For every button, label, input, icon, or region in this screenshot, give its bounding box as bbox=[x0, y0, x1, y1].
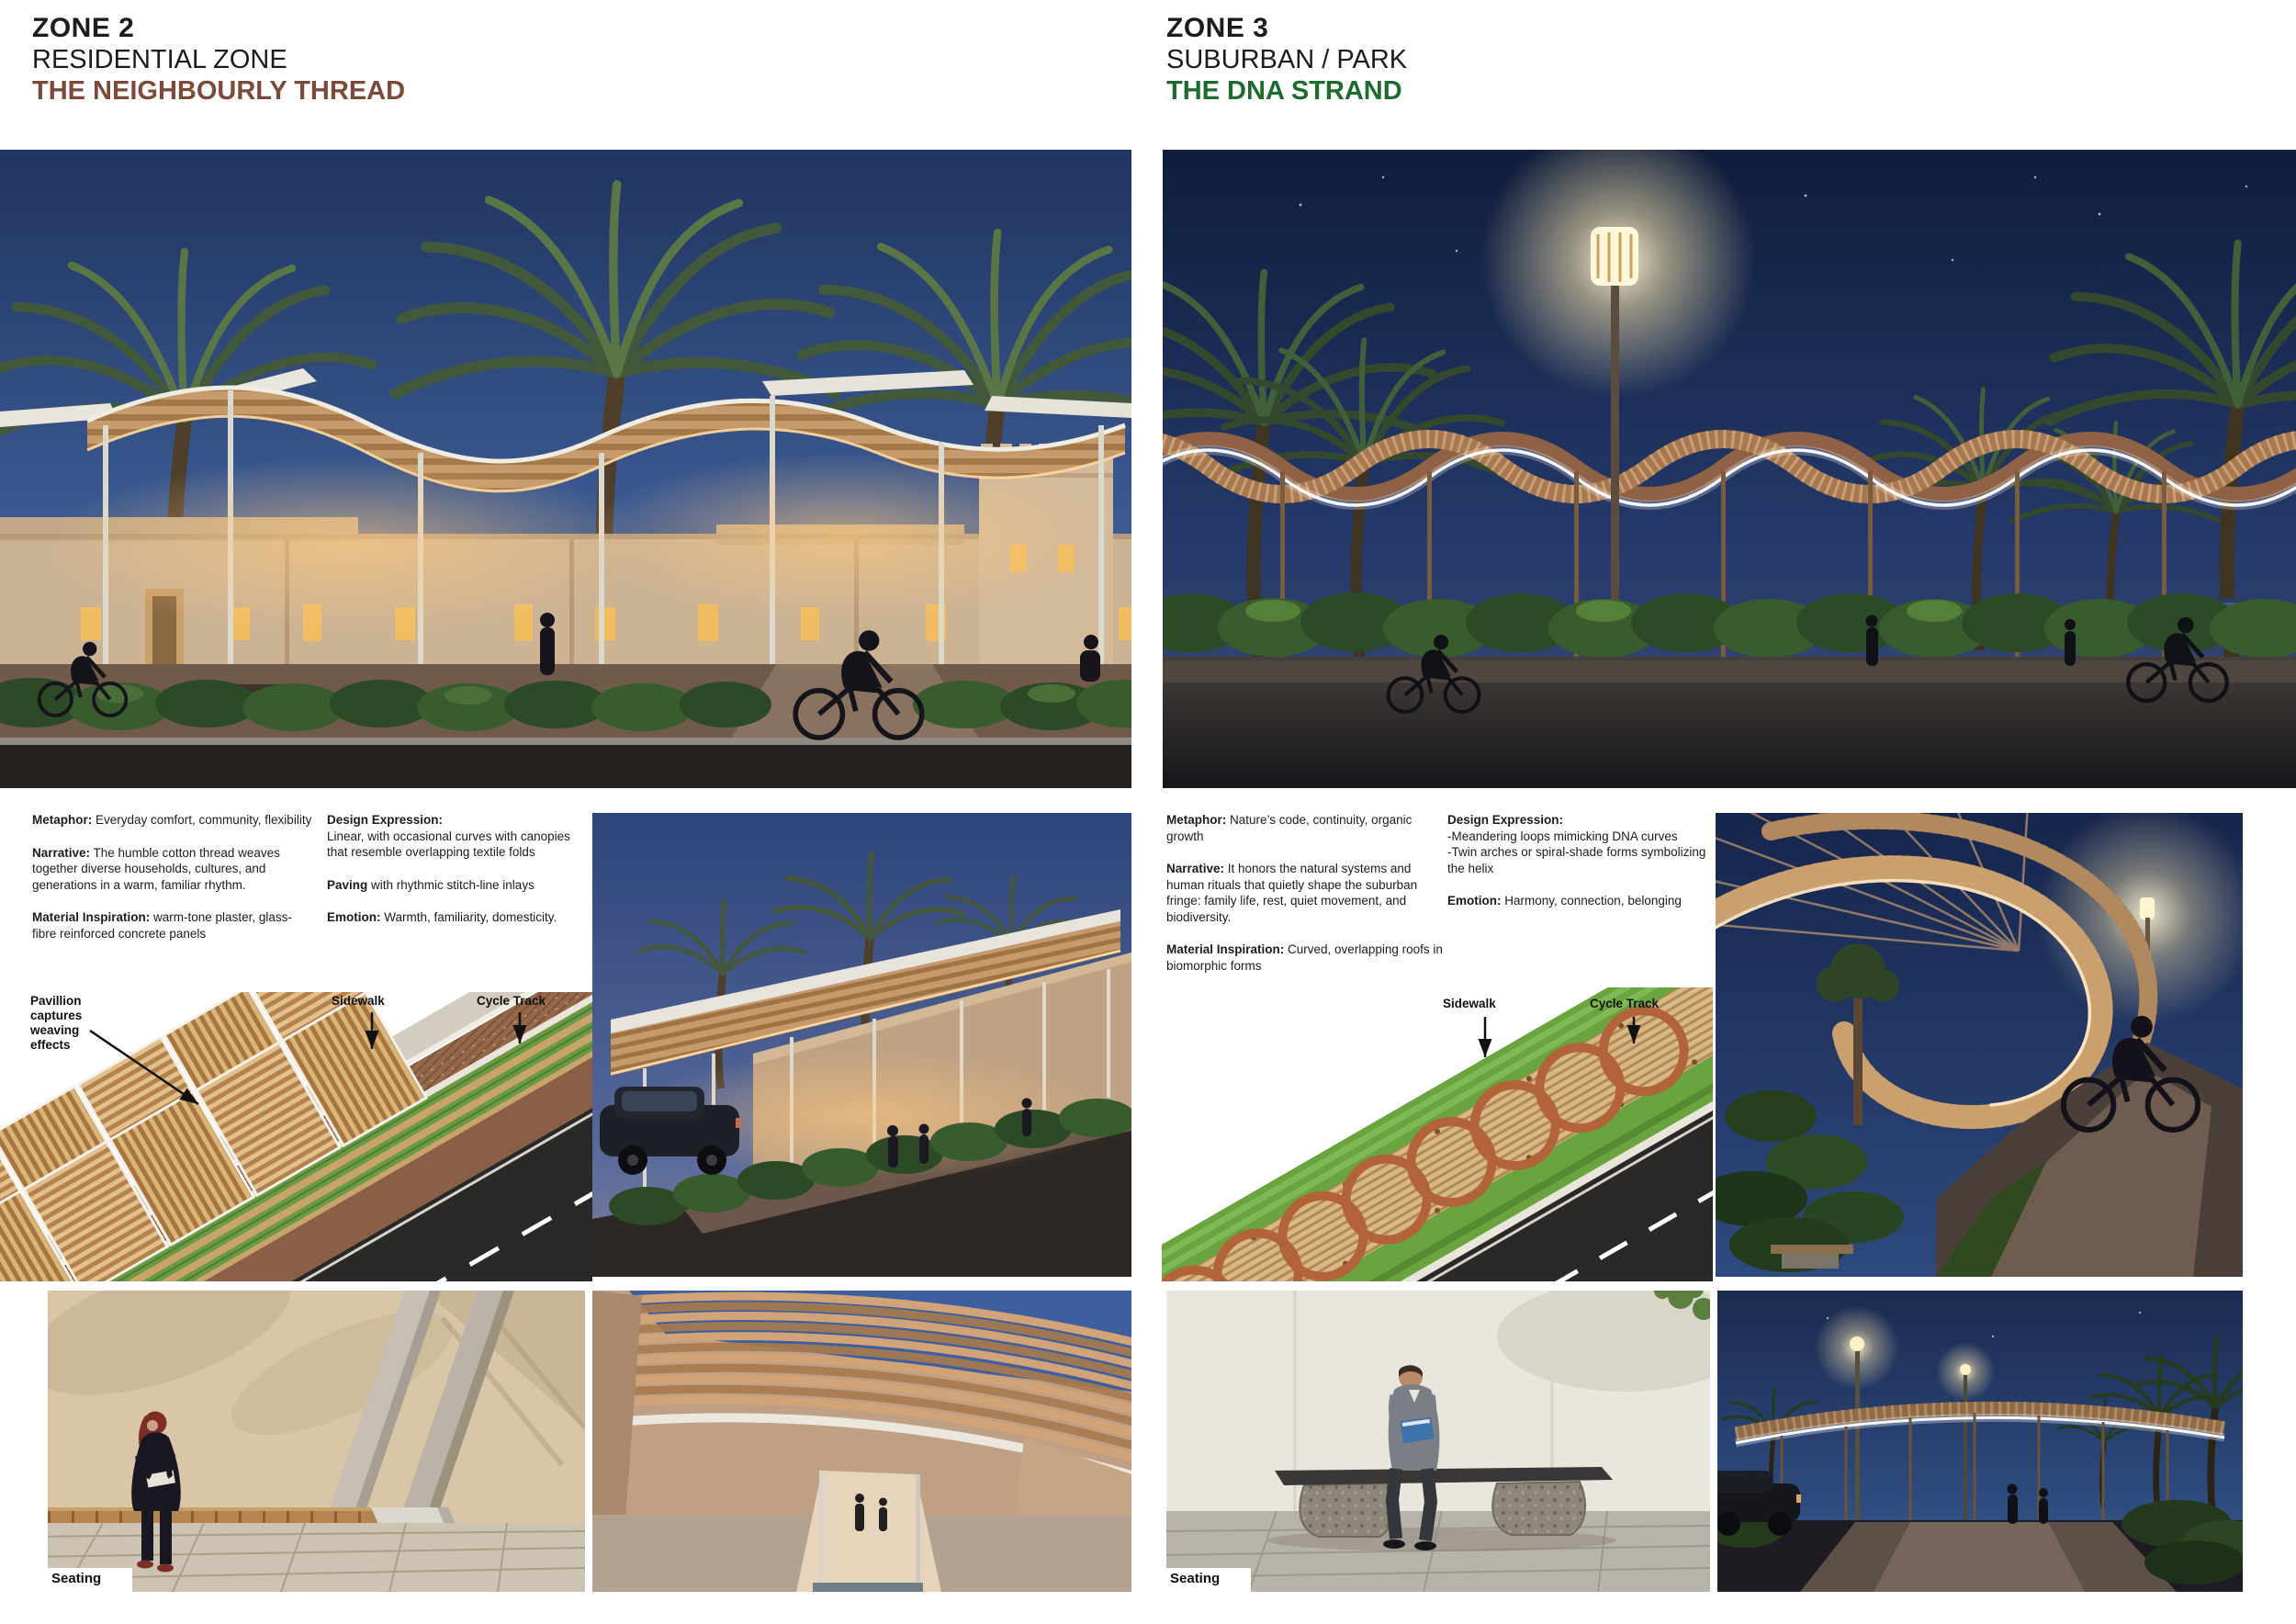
zone2-theme-title: THE NEIGHBOURLY THREAD bbox=[32, 75, 405, 107]
zone3-street-section-diagram: Sidewalk Cycle Track bbox=[1162, 987, 1713, 1281]
zone3-subtitle: SUBURBAN / PARK bbox=[1166, 44, 1407, 75]
zone3-seating-render: Seating bbox=[1166, 1291, 1710, 1592]
zone2-text-col2: Design Expression:Linear, with occasiona… bbox=[327, 812, 593, 942]
zone3-canopy-loop-render bbox=[1716, 813, 2243, 1277]
zone3-sidewalk-label: Sidewalk bbox=[1443, 997, 1496, 1011]
presentation-board: ZONE 2 RESIDENTIAL ZONE THE NEIGHBOURLY … bbox=[0, 0, 2296, 1624]
zone2-title: ZONE 2 bbox=[32, 13, 405, 44]
zone3-night-path-render bbox=[1717, 1291, 2243, 1592]
zone3-hero-render bbox=[1163, 150, 2296, 788]
zone3-text-col2: Design Expression:-Meandering loops mimi… bbox=[1447, 812, 1706, 926]
zone3-seating-label: Seating bbox=[1166, 1568, 1251, 1592]
zone3-text-col1: Metaphor: Nature’s code, continuity, org… bbox=[1166, 812, 1444, 990]
zone3-theme-title: THE DNA STRAND bbox=[1166, 75, 1407, 107]
zone2-subtitle: RESIDENTIAL ZONE bbox=[32, 44, 405, 75]
zone2-seating-render: Seating bbox=[48, 1291, 585, 1592]
zone2-header: ZONE 2 RESIDENTIAL ZONE THE NEIGHBOURLY … bbox=[32, 13, 405, 107]
zone2-walkway-render bbox=[592, 813, 1131, 1277]
zone2-sidewalk-label: Sidewalk bbox=[332, 994, 385, 1009]
zone3-cycle-track-label: Cycle Track bbox=[1590, 997, 1659, 1011]
zone2-text-col1: Metaphor: Everyday comfort, community, f… bbox=[32, 812, 313, 958]
zone3-title: ZONE 3 bbox=[1166, 13, 1407, 44]
zone2-seating-label: Seating bbox=[48, 1568, 132, 1592]
zone2-hero-render bbox=[0, 150, 1131, 788]
zone2-cycle-track-label: Cycle Track bbox=[477, 994, 546, 1009]
zone2-canopy-underside-render bbox=[592, 1291, 1131, 1592]
zone2-street-section-diagram: Pavillion captures weaving effects Sidew… bbox=[0, 992, 592, 1281]
zone2-pavilion-callout: Pavillion captures weaving effects bbox=[30, 994, 118, 1053]
zone3-header: ZONE 3 SUBURBAN / PARK THE DNA STRAND bbox=[1166, 13, 1407, 107]
